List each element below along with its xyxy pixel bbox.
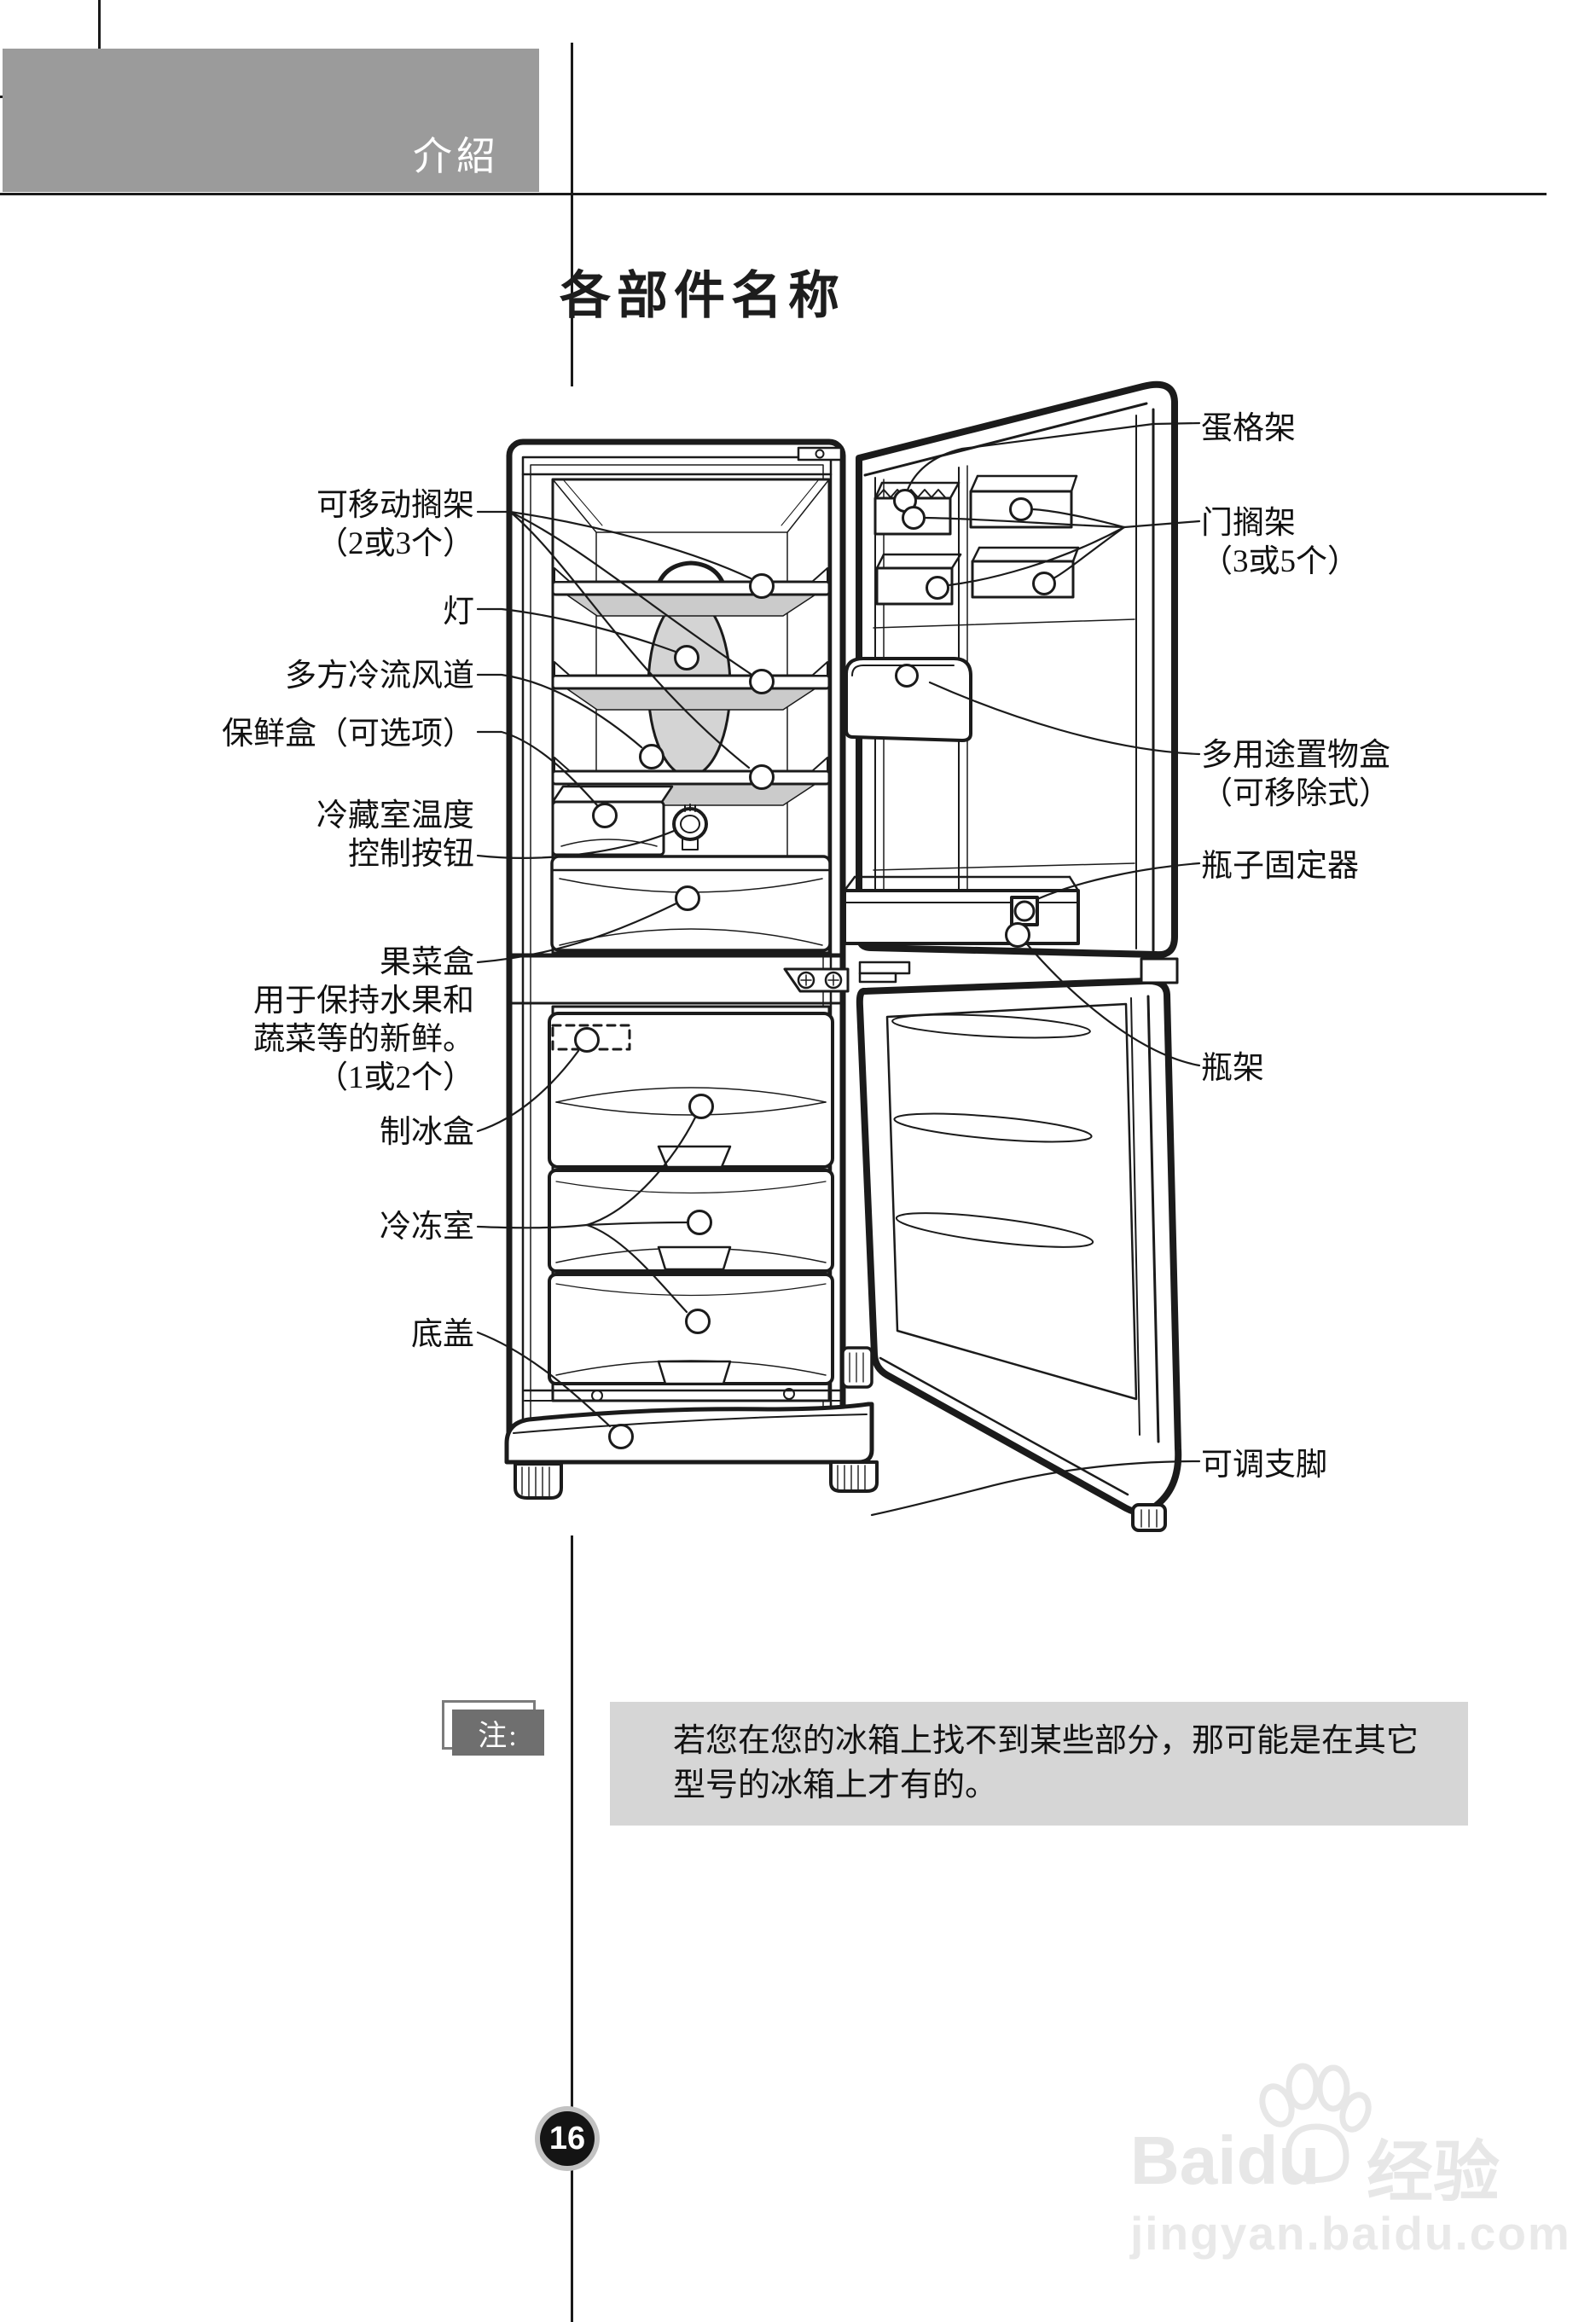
label-egg-rack: 蛋格架 — [1201, 409, 1296, 448]
label-temp-control: 冷藏室温度 控制按钮 — [316, 797, 474, 874]
label-freezer-room: 冷冻室 — [380, 1208, 474, 1246]
label-ice-box: 制冰盒 — [380, 1113, 474, 1152]
label-adjustable-feet: 可调支脚 — [1201, 1446, 1327, 1484]
page-number-badge: 16 — [540, 2111, 595, 2166]
left-foot — [515, 1464, 561, 1498]
label-fruit-veg-box: 果菜盒 用于保持水果和 蔬菜等的新鲜。 （1或2个） — [253, 943, 474, 1097]
refrigerator-diagram — [0, 0, 1596, 2322]
label-removable-shelf: 可移动搁架 （2或3个） — [316, 486, 474, 563]
manual-page: 介紹 各部件名称 — [0, 0, 1596, 2322]
label-door-rack: 门搁架 （3或5个） — [1201, 504, 1359, 581]
label-lamp: 灯 — [443, 593, 474, 631]
label-fresh-box: 保鲜盒（可选项） — [222, 715, 474, 753]
note-badge: 注: — [452, 1710, 544, 1756]
page-number: 16 — [549, 2121, 585, 2157]
freezer-interior — [525, 1007, 840, 1401]
watermark-brand-suffix: 经验 — [1367, 2119, 1500, 2215]
rear-right-foot — [843, 1348, 872, 1387]
watermark-url: jingyan.baidu.com — [1130, 2206, 1571, 2261]
label-multi-purpose-box: 多用途置物盒 （可移除式） — [1201, 736, 1390, 813]
note-box: 若您在您的冰箱上找不到某些部分，那可能是在其它 型号的冰箱上才有的。 — [610, 1702, 1468, 1826]
label-bottom-cover: 底盖 — [411, 1315, 474, 1354]
label-multi-air-flow: 多方冷流风道 — [285, 657, 474, 695]
door-foot — [1133, 1505, 1165, 1530]
right-foot — [831, 1462, 877, 1491]
label-bottle-rack: 瓶架 — [1201, 1049, 1264, 1088]
freezer-door — [860, 981, 1178, 1512]
baidu-paw-icon — [1241, 2054, 1386, 2199]
note-text: 若您在您的冰箱上找不到某些部分，那可能是在其它 型号的冰箱上才有的。 — [673, 1719, 1419, 1808]
fridge-door — [844, 385, 1175, 955]
label-bottle-fixer: 瓶子固定器 — [1201, 847, 1359, 885]
